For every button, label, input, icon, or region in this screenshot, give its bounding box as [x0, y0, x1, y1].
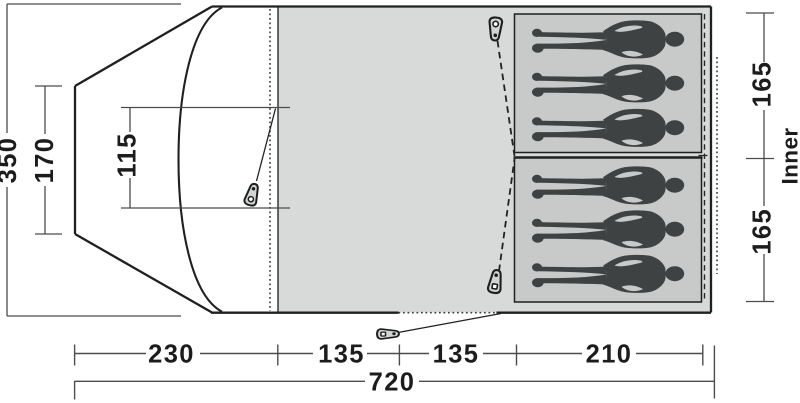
svg-text:165: 165: [749, 208, 777, 255]
svg-text:170: 170: [31, 137, 59, 184]
svg-text:720: 720: [369, 368, 416, 396]
svg-text:230: 230: [148, 341, 195, 369]
svg-text:350: 350: [0, 137, 22, 184]
svg-text:135: 135: [318, 341, 365, 369]
svg-text:210: 210: [586, 341, 633, 369]
svg-text:115: 115: [114, 132, 142, 177]
svg-text:Inner: Inner: [778, 127, 800, 184]
svg-text:135: 135: [433, 341, 480, 369]
svg-text:165: 165: [749, 61, 777, 108]
